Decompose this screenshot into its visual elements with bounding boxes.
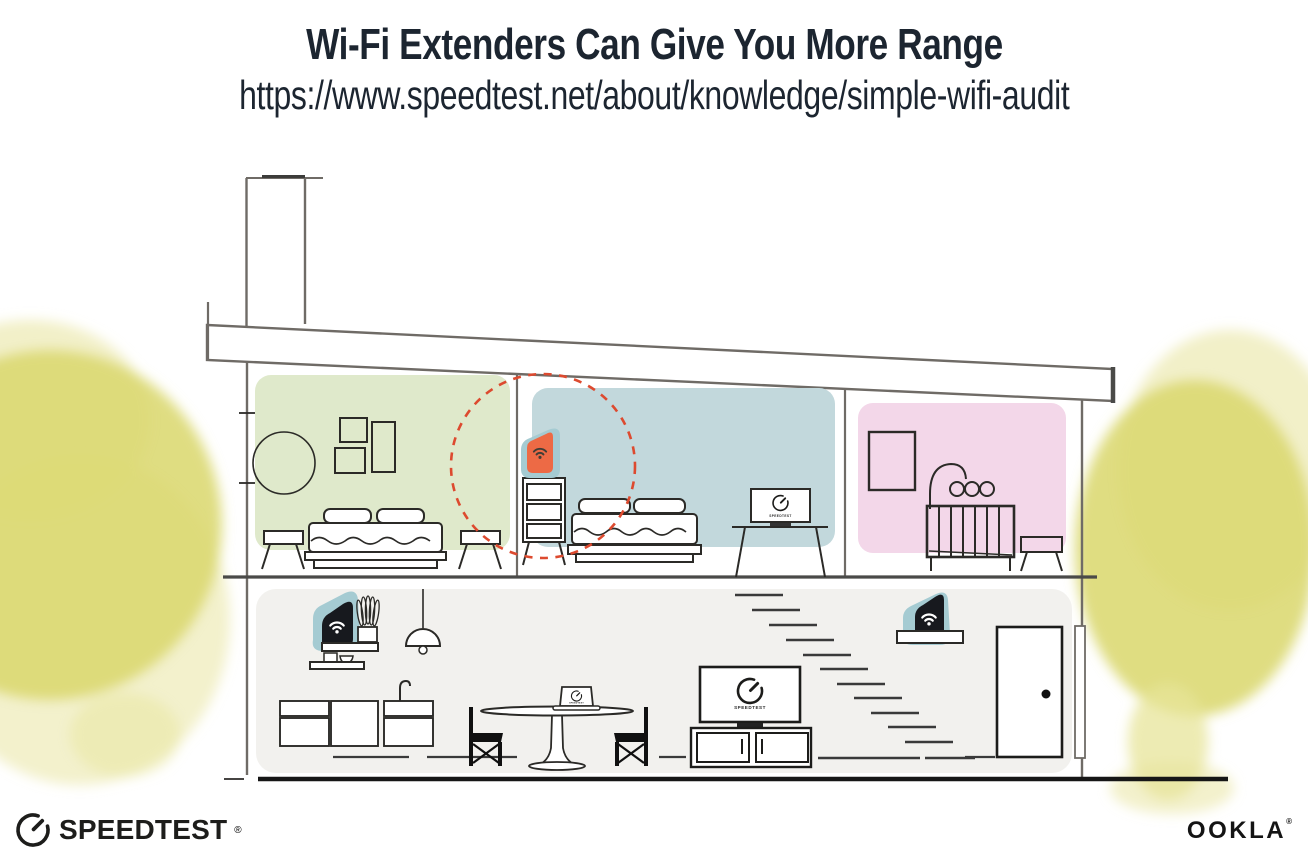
ookla-wordmark: OOKLA	[1187, 817, 1286, 844]
tv-screen-label: SPEEDTEST	[769, 514, 792, 518]
page-url: https://www.speedtest.net/about/knowledg…	[239, 72, 1069, 119]
front-door	[997, 627, 1062, 757]
laptop-screen-label: SPEEDTEST	[569, 703, 584, 705]
bed-blue	[568, 499, 701, 562]
registered-mark: ®	[1286, 817, 1292, 826]
page-title: Wi-Fi Extenders Can Give You More Range	[306, 20, 1003, 70]
speedtest-gauge-icon	[14, 811, 52, 849]
header: Wi-Fi Extenders Can Give You More Range …	[0, 0, 1308, 119]
speedtest-logo: SPEEDTEST®	[14, 811, 242, 849]
shelf-upper	[322, 643, 378, 651]
chimney	[246, 177, 323, 331]
tv-stand	[691, 728, 811, 767]
tv-living-room: SPEEDTEST	[700, 667, 800, 727]
tv-screen-label: SPEEDTEST	[734, 705, 766, 710]
doorknob	[1042, 690, 1051, 699]
stool-pink	[1021, 537, 1062, 571]
wall-tick-marks	[224, 413, 255, 779]
wall-pipe	[1075, 626, 1085, 758]
registered-mark: ®	[234, 825, 241, 836]
shelf	[897, 631, 963, 643]
tree-left	[0, 320, 230, 785]
shelf-lower	[310, 662, 364, 669]
speedtest-wordmark: SPEEDTEST	[59, 814, 227, 846]
wifi-extender-orange-icon	[521, 428, 560, 478]
ookla-logo: OOKLA®	[1187, 817, 1292, 845]
dresser	[523, 478, 565, 565]
tree-right	[1075, 330, 1308, 814]
house-cross-section-illustration: SPEEDTEST	[0, 0, 1308, 861]
infographic-canvas: Wi-Fi Extenders Can Give You More Range …	[0, 0, 1308, 861]
